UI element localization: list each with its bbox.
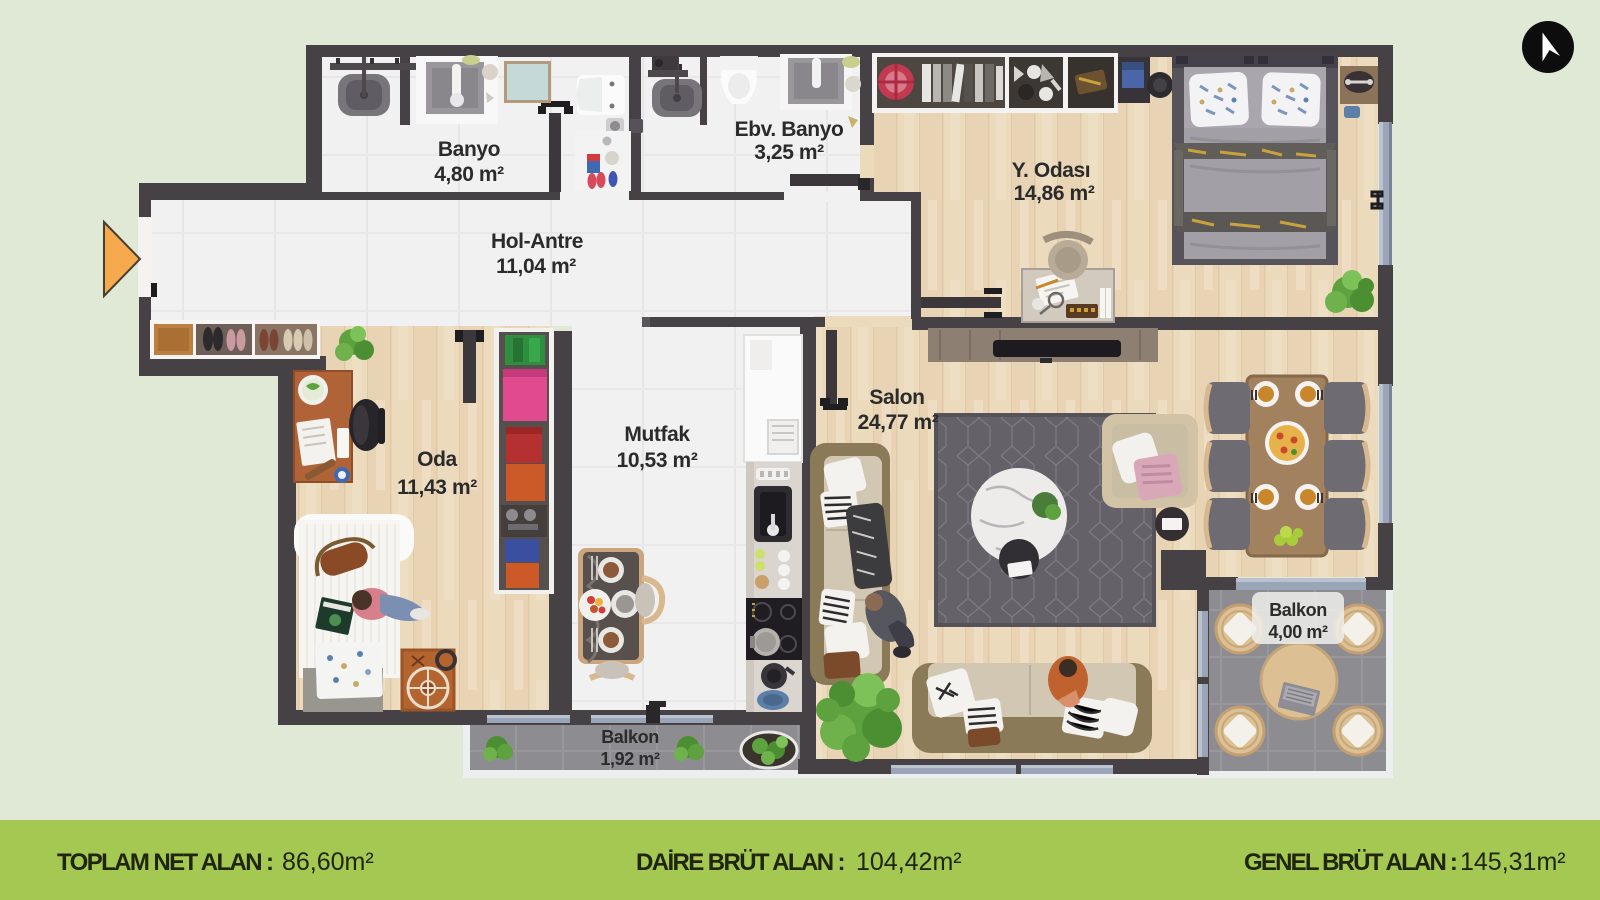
- svg-text:Hol-Antre: Hol-Antre: [491, 230, 583, 253]
- svg-text:24,77 m²: 24,77 m²: [858, 411, 939, 434]
- svg-text:10,53 m²: 10,53 m²: [617, 449, 698, 472]
- svg-text:11,04 m²: 11,04 m²: [496, 255, 576, 278]
- svg-text:TOPLAM NET ALAN :: TOPLAM NET ALAN :: [57, 849, 272, 876]
- svg-text:Mutfak: Mutfak: [624, 423, 690, 446]
- svg-text:Balkon: Balkon: [601, 727, 659, 747]
- svg-text:1,92 m²: 1,92 m²: [600, 749, 660, 769]
- svg-text:Balkon: Balkon: [1269, 600, 1327, 620]
- svg-text:104,42m²: 104,42m²: [856, 848, 962, 876]
- svg-text:4,00 m²: 4,00 m²: [1268, 622, 1328, 642]
- svg-text:86,60m²: 86,60m²: [282, 848, 374, 876]
- svg-text:Y. Odası: Y. Odası: [1012, 159, 1091, 182]
- svg-text:Oda: Oda: [417, 448, 457, 471]
- svg-text:3,25 m²: 3,25 m²: [754, 141, 824, 164]
- svg-text:GENEL BRÜT ALAN :: GENEL BRÜT ALAN :: [1244, 849, 1456, 876]
- svg-text:Banyo: Banyo: [438, 138, 500, 161]
- svg-text:4,80 m²: 4,80 m²: [434, 163, 504, 186]
- svg-text:DAİRE BRÜT ALAN :: DAİRE BRÜT ALAN :: [636, 849, 844, 876]
- svg-text:145,31m²: 145,31m²: [1460, 848, 1566, 876]
- svg-text:Ebv. Banyo: Ebv. Banyo: [735, 118, 844, 141]
- svg-text:14,86 m²: 14,86 m²: [1014, 182, 1095, 205]
- svg-text:Salon: Salon: [869, 386, 924, 409]
- svg-text:11,43 m²: 11,43 m²: [397, 476, 477, 499]
